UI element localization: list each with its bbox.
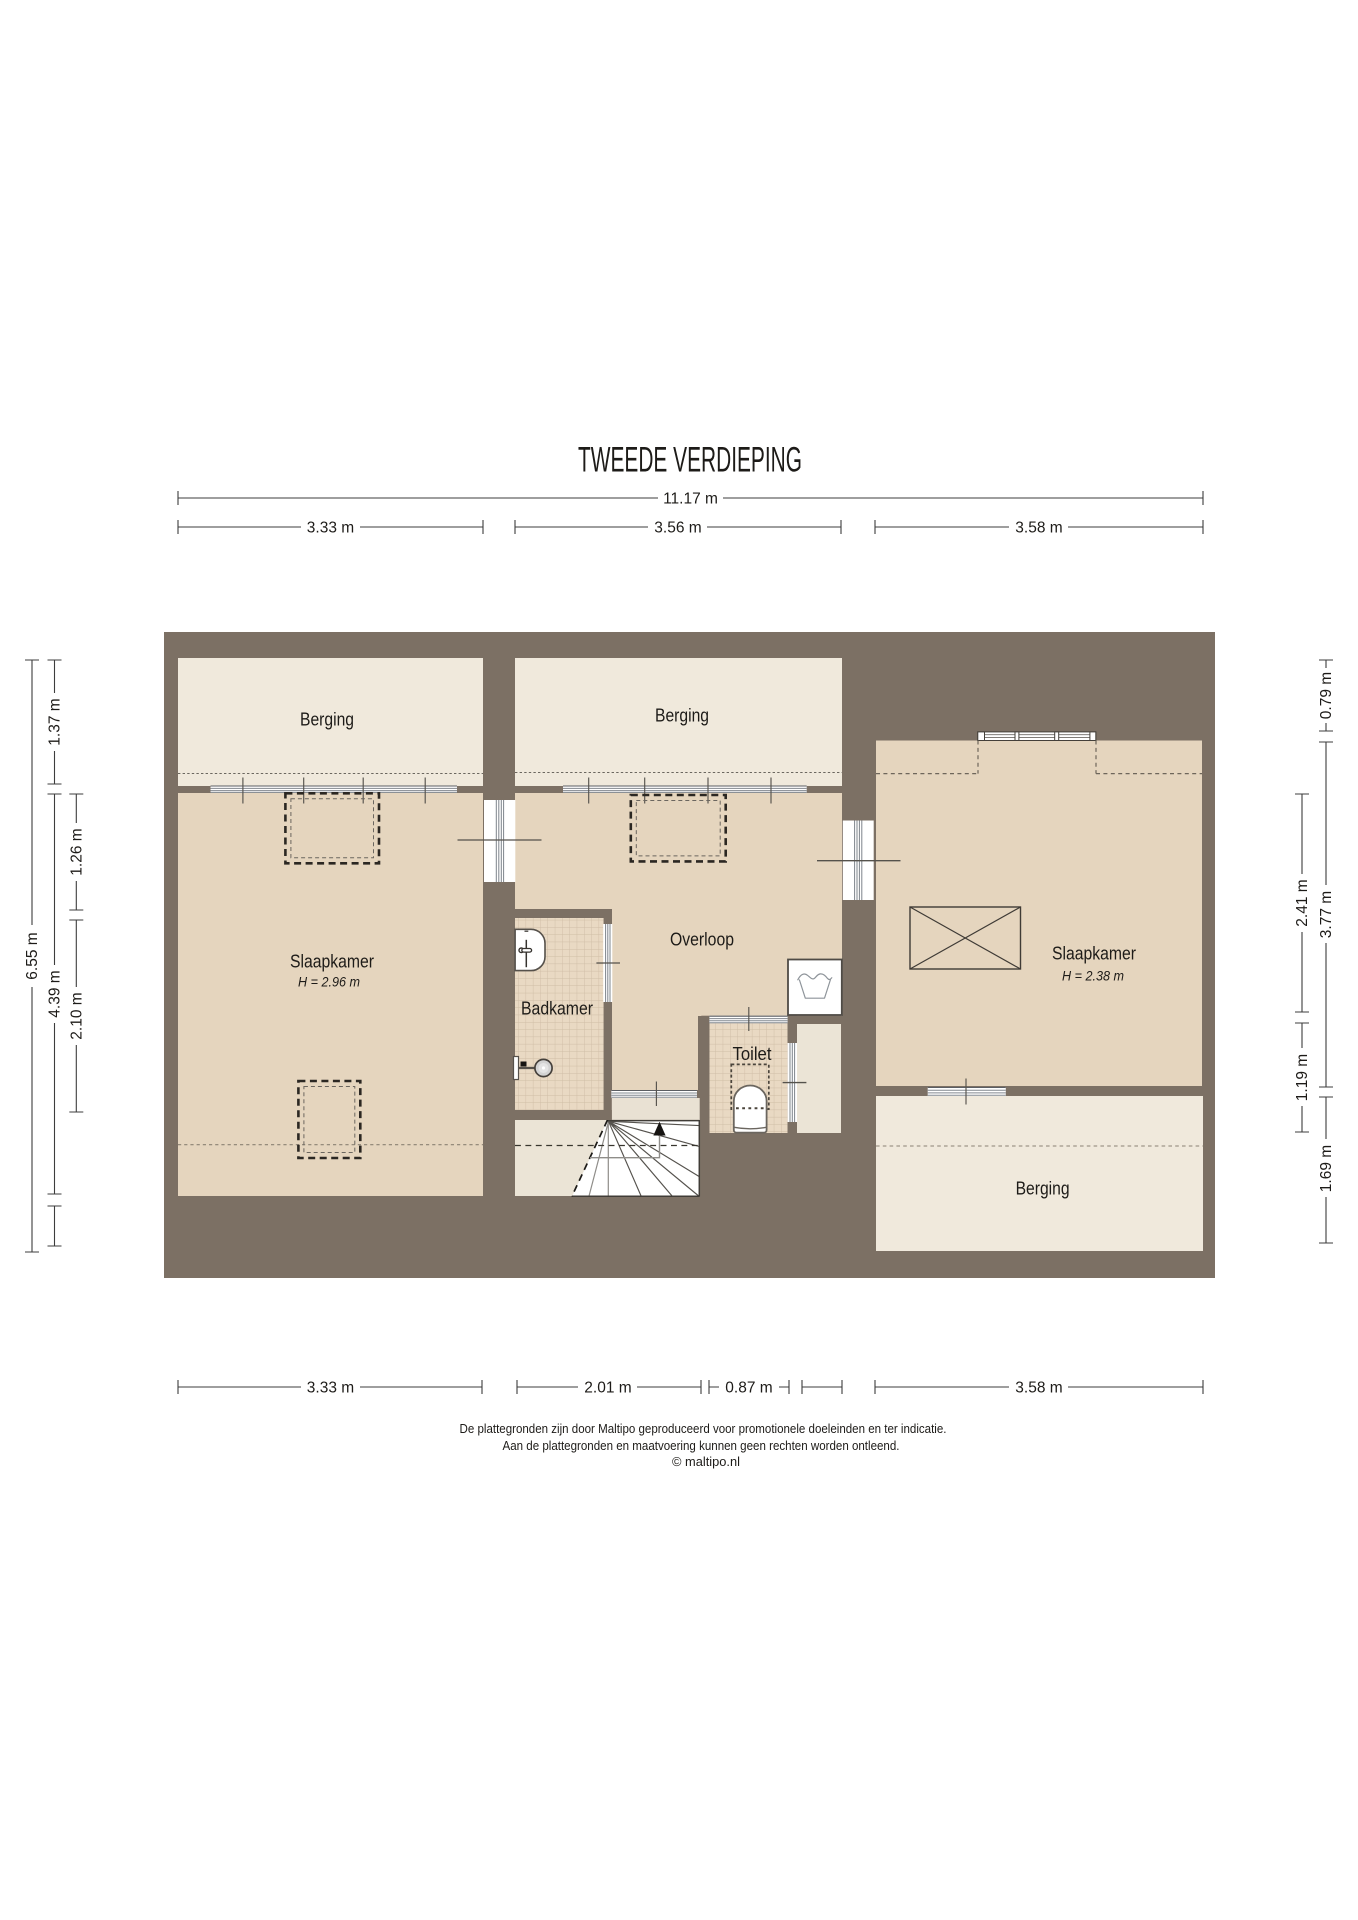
svg-text:TWEEDE VERDIEPING: TWEEDE VERDIEPING <box>578 441 802 480</box>
svg-text:1.26 m: 1.26 m <box>69 828 86 875</box>
svg-text:H = 2.38 m: H = 2.38 m <box>1062 968 1124 984</box>
svg-text:Berging: Berging <box>655 706 709 726</box>
svg-text:1.69 m: 1.69 m <box>1318 1145 1335 1192</box>
svg-text:Slaapkamer: Slaapkamer <box>1052 944 1136 964</box>
svg-text:1.19 m: 1.19 m <box>1294 1054 1311 1101</box>
svg-text:6.55 m: 6.55 m <box>24 932 41 979</box>
svg-text:0.79 m: 0.79 m <box>1318 672 1335 719</box>
svg-text:2.10 m: 2.10 m <box>69 992 86 1039</box>
svg-text:© maltipo.nl: © maltipo.nl <box>672 1454 740 1469</box>
svg-text:Badkamer: Badkamer <box>521 999 593 1019</box>
svg-text:Overloop: Overloop <box>670 930 734 950</box>
svg-text:11.17 m: 11.17 m <box>663 491 718 508</box>
svg-text:3.33 m: 3.33 m <box>307 1380 354 1397</box>
svg-text:Slaapkamer: Slaapkamer <box>290 952 374 972</box>
svg-text:1.37 m: 1.37 m <box>47 698 64 745</box>
svg-text:Berging: Berging <box>300 710 354 730</box>
svg-text:3.58 m: 3.58 m <box>1015 520 1062 537</box>
svg-text:Aan de plattegronden en maatvo: Aan de plattegronden en maatvoering kunn… <box>503 1438 900 1453</box>
svg-text:3.56 m: 3.56 m <box>654 520 701 537</box>
svg-text:Berging: Berging <box>1016 1179 1070 1199</box>
svg-text:H = 2.96 m: H = 2.96 m <box>298 974 360 990</box>
svg-text:2.01 m: 2.01 m <box>584 1380 631 1397</box>
svg-text:De plattegronden zijn door Mal: De plattegronden zijn door Maltipo gepro… <box>460 1421 947 1436</box>
svg-text:2.41 m: 2.41 m <box>1294 879 1311 926</box>
svg-text:Toilet: Toilet <box>733 1044 772 1064</box>
svg-text:0.87 m: 0.87 m <box>725 1380 772 1397</box>
svg-text:3.58 m: 3.58 m <box>1015 1380 1062 1397</box>
svg-text:3.77 m: 3.77 m <box>1318 891 1335 938</box>
svg-text:3.33 m: 3.33 m <box>307 520 354 537</box>
svg-text:4.39 m: 4.39 m <box>47 970 64 1017</box>
